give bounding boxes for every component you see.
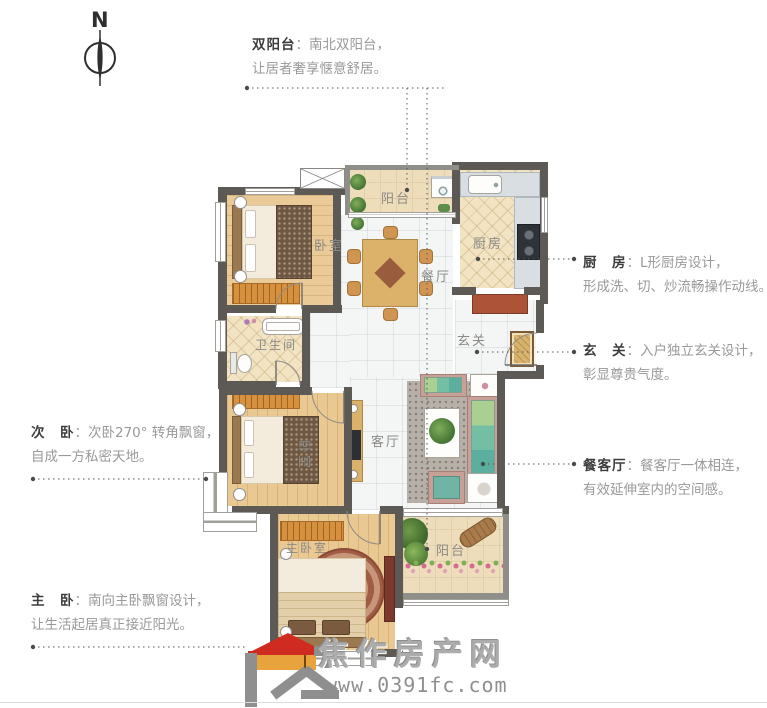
wall	[497, 371, 544, 379]
entry-door-mat	[510, 331, 534, 367]
room-label-bedroom-north: 卧室	[314, 235, 344, 254]
window	[215, 320, 226, 352]
bed-west-lamp-b	[233, 488, 246, 501]
toilet-bowl	[237, 354, 252, 373]
dining-chair-6	[383, 308, 398, 321]
annotation-line2: 有效延伸室内的空间感。	[583, 478, 748, 502]
dining-chair-3	[419, 249, 433, 264]
bed-west-pillow-b	[244, 452, 254, 478]
room-label-dining: 餐厅	[421, 266, 451, 285]
annotation-title: 厨 房	[583, 255, 627, 271]
bed-west-lamp-a	[233, 403, 246, 416]
bed-north-lamp-a	[234, 196, 247, 209]
wall	[395, 506, 403, 608]
side-table-south	[467, 473, 499, 503]
annotation-kitchen: 厨 房：L形厨房设计， 形成洗、切、炒流畅操作动线。	[583, 251, 767, 299]
bottom-divider	[0, 702, 767, 703]
wall	[344, 387, 352, 514]
room-label-kitchen: 厨房	[473, 233, 503, 252]
wall	[540, 162, 548, 304]
room-label-foyer: 玄关	[457, 330, 487, 349]
balcony-north-door-window	[348, 212, 456, 218]
annotation-line2: 彰显尊贵气度。	[583, 363, 762, 387]
compass-circle	[85, 43, 115, 73]
annotation-dining-living: 餐客厅：餐客厅一体相连， 有效延伸室内的空间感。	[583, 454, 748, 502]
wall	[524, 287, 542, 295]
balcony-north-plant-b	[350, 197, 366, 213]
toilet-tank	[230, 352, 237, 374]
annotation-line1: 餐客厅：餐客厅一体相连，	[583, 454, 748, 478]
annotation-text: 餐客厅一体相连，	[640, 458, 748, 474]
annotation-line1: 双阳台：南北双阳台，	[252, 33, 390, 57]
wall	[218, 305, 276, 313]
floorplan-page: { "compass": {"label": "N"}, "annotation…	[0, 0, 767, 708]
compass	[85, 30, 115, 86]
bedroom-north-wardrobe	[232, 283, 300, 304]
annotation-text: L形厨房设计，	[640, 255, 729, 271]
logo-stroke-left	[245, 653, 257, 707]
annotation-title: 次 卧	[31, 425, 75, 441]
master-wardrobe	[280, 521, 344, 541]
annotation-colon: ：	[627, 458, 641, 474]
bed-north-lamp-b	[234, 270, 247, 283]
annotation-title: 主 卧	[31, 593, 75, 609]
watermark-site-name: 焦作房产网	[318, 629, 508, 674]
balcony-north-plant-c	[438, 204, 450, 212]
annotation-colon: ：	[75, 593, 89, 609]
annotation-foyer: 玄 关：入户独立玄关设计， 彰显尊贵气度。	[583, 339, 762, 387]
sofa-cushions	[471, 400, 495, 476]
annotation-title: 双阳台	[252, 37, 296, 53]
window	[215, 202, 226, 262]
coffee-table-plant	[429, 418, 455, 444]
hall-floor	[310, 312, 350, 388]
bathroom-flowers	[244, 318, 258, 327]
armchair-cushion	[424, 377, 462, 393]
annotation-text: 南北双阳台，	[309, 37, 390, 53]
balcony-north-railing	[345, 165, 350, 215]
annotation-text: 南向主卧飘窗设计，	[88, 593, 210, 609]
annotation-line2: 让生活起居真正接近阳光。	[31, 613, 210, 637]
wall	[536, 300, 544, 333]
wall	[219, 389, 227, 474]
entry-cabinet	[472, 294, 528, 314]
flower-bed	[404, 558, 503, 576]
annotation-double-balcony: 双阳台：南北双阳台， 让居者奢享惬意舒居。	[252, 33, 390, 81]
annotation-colon: ：	[627, 343, 641, 359]
bed-north-blanket	[276, 205, 312, 279]
bed-north-pillow-b	[245, 244, 256, 272]
annotation-title: 玄 关	[583, 343, 627, 359]
corner-bay-window	[203, 512, 257, 532]
dining-chair-5	[383, 226, 398, 239]
compass-north-label: N	[91, 8, 109, 32]
room-label-master-bedroom: 主卧室	[286, 539, 328, 556]
room-label-bathroom: 卫生间	[255, 336, 297, 353]
bathtub	[262, 318, 304, 335]
dining-chair-1	[347, 249, 361, 264]
ottoman-cushion	[433, 476, 460, 499]
bed-west-pillow-a	[244, 420, 254, 446]
bed-west-headboard	[232, 416, 241, 484]
annotation-colon: ：	[296, 37, 310, 53]
wall	[302, 311, 310, 389]
ac-platform	[300, 168, 345, 189]
window	[245, 188, 295, 195]
room-label-balcony-south: 阳台	[436, 540, 466, 559]
kitchen-stove	[517, 224, 540, 260]
annotation-text: 次卧270° 转角飘窗，	[88, 425, 219, 441]
annotation-second-bedroom: 次 卧：次卧270° 转角飘窗， 自成一方私密天地。	[31, 421, 219, 469]
wall	[497, 377, 505, 510]
balcony-south-window	[403, 599, 509, 606]
annotation-line2: 自成一方私密天地。	[31, 445, 219, 469]
balcony-south-railing	[503, 514, 509, 598]
wall	[452, 162, 548, 170]
dining-plant	[351, 217, 364, 230]
annotation-colon: ：	[627, 255, 641, 271]
annotation-title: 餐客厅	[583, 458, 627, 474]
wall	[219, 387, 312, 395]
balcony-north-plant-a	[350, 174, 366, 190]
dining-chair-2	[347, 281, 361, 296]
living-balcony-window	[403, 508, 503, 517]
annotation-line2: 形成洗、切、炒流畅操作动线。	[583, 275, 767, 299]
annotation-line1: 主 卧：南向主卧飘窗设计，	[31, 589, 210, 613]
annotation-line1: 厨 房：L形厨房设计，	[583, 251, 767, 275]
annotation-text: 入户独立玄关设计，	[640, 343, 762, 359]
window	[541, 197, 548, 233]
annotation-line2: 让居者奢享惬意舒居。	[252, 57, 390, 81]
side-table-north	[470, 374, 498, 397]
kitchen-sink	[468, 175, 502, 194]
bed-north-pillow-a	[245, 210, 256, 238]
annotation-master-bedroom: 主 卧：南向主卧飘窗设计， 让生活起居真正接近阳光。	[31, 589, 210, 637]
balcony-north-railing	[345, 165, 459, 170]
annotation-colon: ：	[75, 425, 89, 441]
annotation-line1: 次 卧：次卧270° 转角飘窗，	[31, 421, 219, 445]
washing-machine	[431, 176, 454, 198]
watermark-site-url: www.0391fc.com	[325, 673, 508, 697]
annotation-line1: 玄 关：入户独立玄关设计，	[583, 339, 762, 363]
compass-needle-icon	[97, 36, 102, 80]
room-label-living: 客厅	[371, 431, 401, 450]
room-label-balcony-north: 阳台	[381, 188, 411, 207]
bed-north-headboard	[232, 205, 242, 279]
master-dresser	[384, 556, 395, 622]
wall	[452, 287, 476, 295]
room-label-bedroom-west: 卧室	[296, 440, 315, 470]
